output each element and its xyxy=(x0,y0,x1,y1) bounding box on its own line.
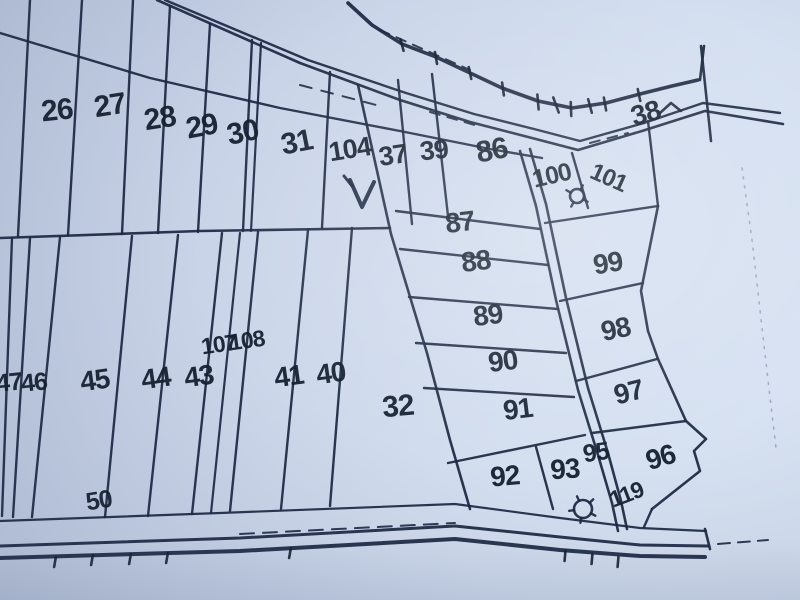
parcel-label-89: 89 xyxy=(471,298,504,332)
survey-marker-spoke xyxy=(591,513,595,515)
line-97-96 xyxy=(592,421,686,433)
survey-marker-spoke xyxy=(566,190,570,192)
hatch-tick xyxy=(592,554,593,564)
hatch-tick xyxy=(537,95,538,110)
survey-marker-spoke xyxy=(583,199,587,201)
parcel-label-29: 29 xyxy=(183,107,220,145)
line-100-101-south xyxy=(545,206,658,223)
parcel-label-40: 40 xyxy=(314,355,348,390)
parcel-label-92: 92 xyxy=(489,459,521,492)
bottom-road-dash-right xyxy=(718,540,768,544)
parcel-label-95: 95 xyxy=(581,437,612,468)
parcel-label-104: 104 xyxy=(327,131,374,167)
plat-map-photo: 2627282930311043739863810010187888990919… xyxy=(0,0,800,600)
line-98-97 xyxy=(576,359,657,381)
survey-marker-spoke xyxy=(590,499,594,502)
parcel-96-corner xyxy=(644,509,652,527)
parcel-label-41: 41 xyxy=(272,358,306,393)
fan2-line-107-108 xyxy=(211,233,240,513)
parcel-label-37: 37 xyxy=(377,138,409,172)
parcel-label-39: 39 xyxy=(418,134,450,167)
plat-map-svg: 2627282930311043739863810010187888990919… xyxy=(0,0,800,600)
parcel-label-32: 32 xyxy=(381,389,415,425)
hatch-tick xyxy=(604,98,606,111)
parcel-label-98: 98 xyxy=(598,311,633,347)
parcel-label-50: 50 xyxy=(84,485,114,517)
hatch-tick xyxy=(91,555,93,565)
fan-line-26-left xyxy=(18,0,30,236)
parcel-label-100: 100 xyxy=(530,158,574,194)
parcel-label-93: 93 xyxy=(549,452,581,485)
parcel-label-90: 90 xyxy=(486,344,519,378)
hatch-tick xyxy=(588,99,592,113)
parcel-label-46: 46 xyxy=(20,367,49,398)
parcel-label-108: 108 xyxy=(227,325,267,356)
parcel-label-87: 87 xyxy=(443,205,476,239)
hatch-tick xyxy=(129,554,131,564)
parcel-label-97: 97 xyxy=(611,373,647,410)
parcel-label-31: 31 xyxy=(278,123,315,161)
survey-marker-spoke xyxy=(577,496,579,501)
parcel-label-101: 101 xyxy=(586,158,631,198)
parcel-label-86: 86 xyxy=(473,131,510,169)
parcel-38-east-edge xyxy=(701,46,711,141)
parcel-label-44: 44 xyxy=(139,360,174,395)
left-horizontal-lotline xyxy=(0,228,390,238)
line-99-98 xyxy=(560,283,643,301)
fan2-line-108-41 xyxy=(230,232,258,511)
hatch-tick xyxy=(54,557,56,567)
fan2-line-45-44 xyxy=(105,236,132,517)
survey-marker-circle-icon xyxy=(570,189,584,203)
line-90-91 xyxy=(424,388,574,397)
hatch-tick xyxy=(289,548,291,558)
parcel-label-119: 119 xyxy=(606,476,647,513)
handwritten-checkmark xyxy=(350,180,374,207)
hatch-tick xyxy=(469,67,471,79)
parcel-label-43: 43 xyxy=(182,358,216,393)
survey-marker-spoke xyxy=(571,202,573,206)
parcel-label-88: 88 xyxy=(459,244,492,278)
parcel-label-26: 26 xyxy=(40,92,75,128)
stream-parallel-dash xyxy=(380,30,470,70)
survey-marker-spoke xyxy=(569,510,574,511)
survey-marker-spoke xyxy=(580,518,581,523)
hatch-tick xyxy=(166,553,168,563)
top-road-edge-left xyxy=(0,33,542,158)
hatch-tick xyxy=(502,83,504,96)
parcel-label-96: 96 xyxy=(642,438,679,476)
survey-marker-near-101 xyxy=(566,185,587,206)
hatch-tick xyxy=(618,557,619,567)
line-101-east xyxy=(648,121,658,206)
parcel-label-91: 91 xyxy=(501,392,534,426)
parcel-label-45: 45 xyxy=(78,362,112,397)
parcel-label-99: 99 xyxy=(591,245,625,280)
parcel-label-28: 28 xyxy=(142,100,178,138)
hatch-tick xyxy=(435,52,437,64)
pencil-dotted-line xyxy=(742,168,776,448)
parcel-label-27: 27 xyxy=(92,87,128,125)
hatch-tick xyxy=(565,551,566,561)
